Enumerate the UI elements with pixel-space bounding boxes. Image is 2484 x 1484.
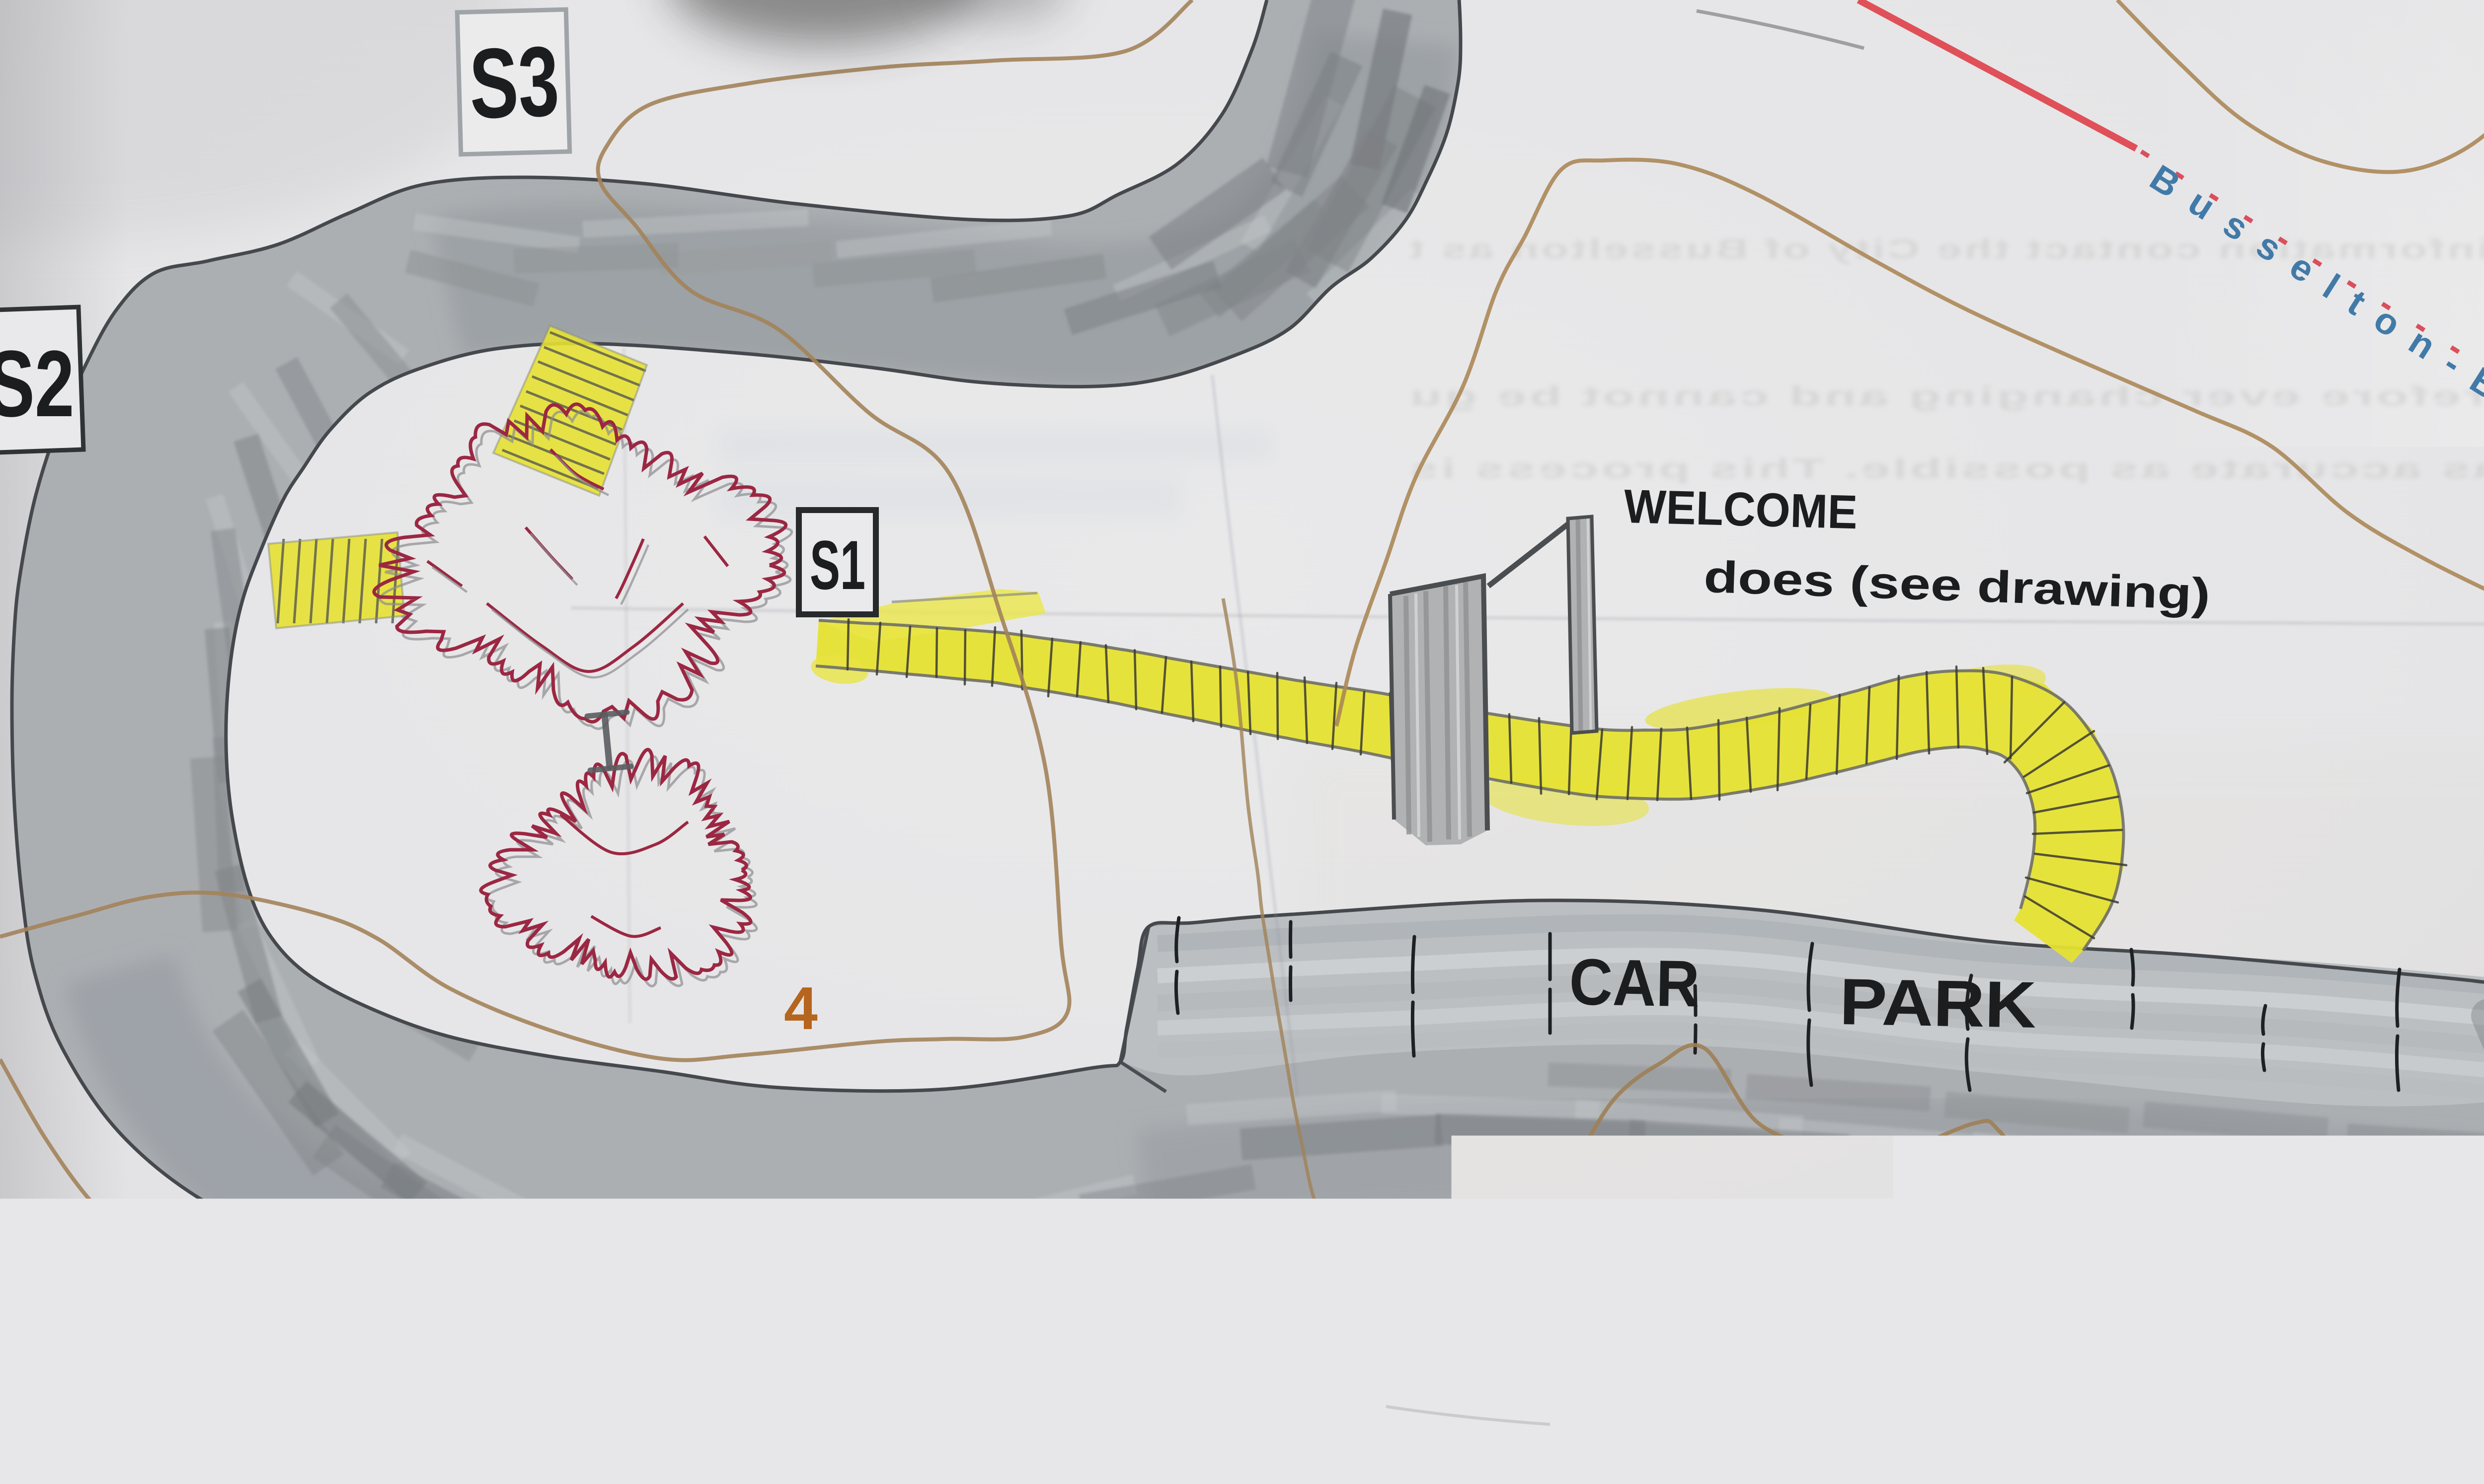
svg-text:is therefore ever changing and: is therefore ever changing and cannot be… (1407, 380, 2484, 411)
svg-text:S2: S2 (0, 331, 75, 437)
svg-text:must be taken not to use this: must be taken not to use this informatio… (1407, 307, 2484, 338)
svg-text:WELCOME: WELCOME (1623, 480, 1858, 539)
svg-text:here as accurate as possible.: here as accurate as possible. This proce… (1407, 453, 2484, 484)
svg-text:S3: S3 (467, 26, 561, 140)
svg-text:S1: S1 (810, 526, 865, 604)
svg-text:CAR: CAR (1569, 945, 1701, 1021)
svg-text:PARK: PARK (1839, 965, 2037, 1041)
svg-text:4: 4 (784, 974, 818, 1042)
